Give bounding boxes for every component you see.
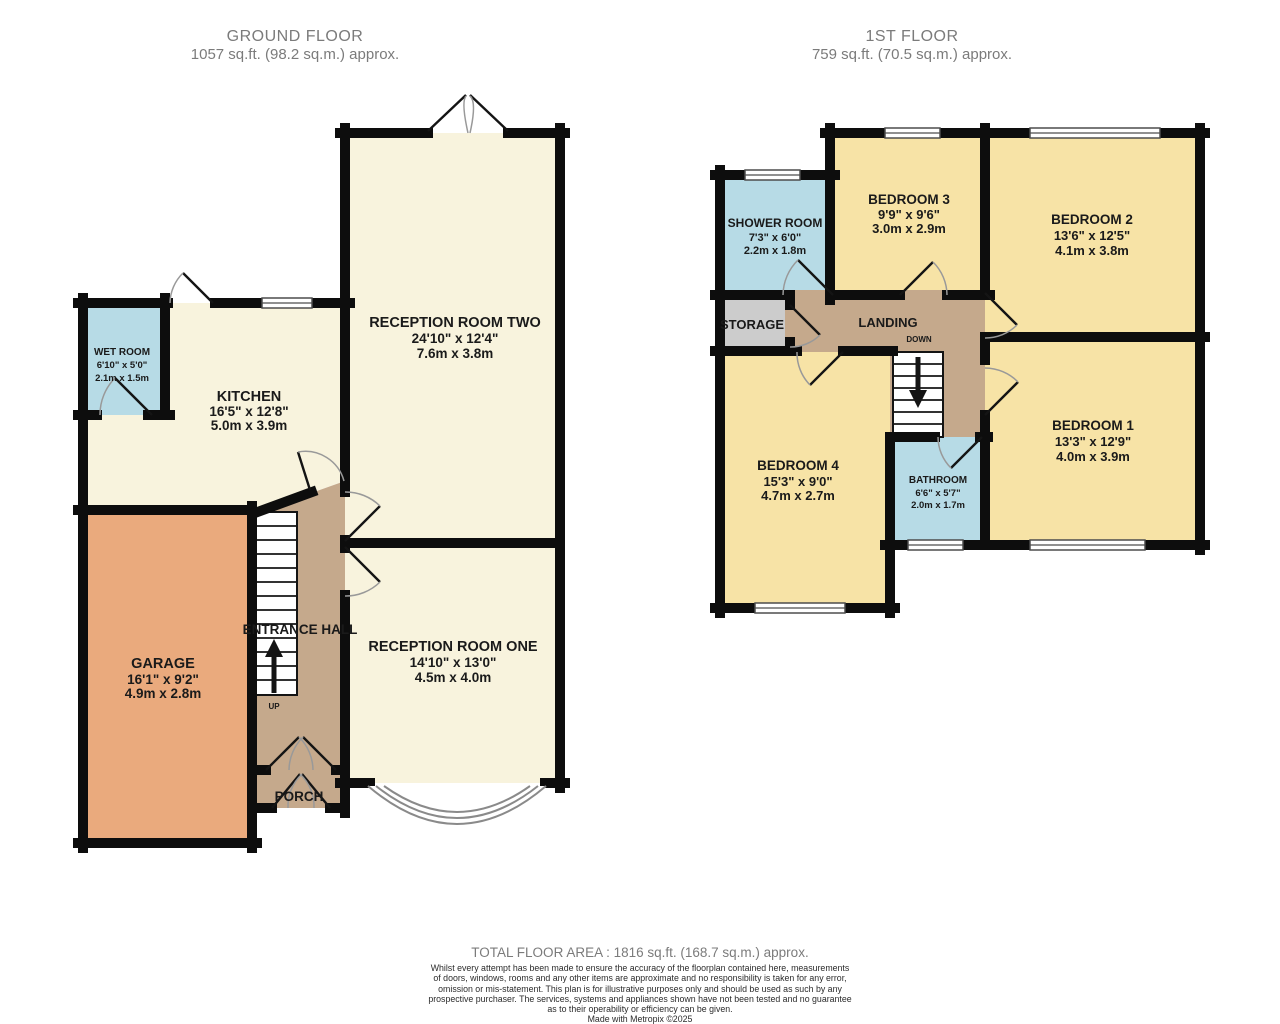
kitchen-dim-imperial: 16'5" x 12'8" (209, 404, 288, 419)
kitchen-window (262, 298, 312, 308)
stairs-up (252, 512, 297, 695)
wet-room-dim-imperial: 6'10" x 5'0" (97, 360, 148, 371)
shower-label: SHOWER ROOM (728, 216, 823, 230)
reception-one-dim-imperial: 14'10" x 13'0" (410, 655, 497, 670)
ground-floor-plan: WET ROOM 6'10" x 5'0" 2.1m x 1.5m KITCHE… (78, 95, 565, 848)
reception-two-dim-imperial: 24'10" x 12'4" (412, 331, 499, 346)
disclaimer-line: Made with Metropix ©2025 (0, 1014, 1280, 1024)
reception-two-dim-metric: 7.6m x 3.8m (417, 346, 494, 361)
reception-one-label: RECEPTION ROOM ONE (368, 639, 538, 655)
stairs-down (893, 352, 943, 437)
porch-label: PORCH (275, 789, 324, 804)
bathroom-dim-metric: 2.0m x 1.7m (911, 500, 965, 511)
disclaimer-line: of doors, windows, rooms and any other i… (0, 973, 1280, 983)
bedroom4-window (755, 603, 845, 613)
bedroom3-dim-imperial: 9'9" x 9'6" (878, 207, 940, 222)
floorplan-page: GROUND FLOOR 1057 sq.ft. (98.2 sq.m.) ap… (0, 0, 1280, 1024)
garage-label: GARAGE (131, 656, 195, 672)
storage-label: STORAGE (720, 317, 784, 332)
kitchen-exterior-door (170, 273, 213, 303)
landing-label: LANDING (858, 315, 917, 330)
bedroom3-label: BEDROOM 3 (868, 192, 950, 207)
bedroom1-label: BEDROOM 1 (1052, 418, 1134, 433)
bedroom4-dim-imperial: 15'3" x 9'0" (763, 474, 832, 489)
bathroom-window (908, 540, 963, 550)
kitchen-label: KITCHEN (217, 389, 281, 405)
bedroom2-dim-imperial: 13'6" x 12'5" (1054, 228, 1130, 243)
bay-window (368, 786, 546, 824)
bathroom-label: BATHROOM (909, 475, 967, 486)
bedroom4-label: BEDROOM 4 (757, 458, 839, 473)
garage-dim-metric: 4.9m x 2.8m (125, 686, 202, 701)
shower-dim-imperial: 7'3" x 6'0" (749, 232, 801, 244)
wet-room-dim-metric: 2.1m x 1.5m (95, 373, 149, 384)
disclaimer-line: prospective purchaser. The services, sys… (0, 994, 1280, 1004)
french-doors (428, 95, 508, 133)
bedroom2-dim-metric: 4.1m x 3.8m (1055, 243, 1129, 258)
kitchen-dim-metric: 5.0m x 3.9m (211, 418, 288, 433)
disclaimer-line: Whilst every attempt has been made to en… (0, 963, 1280, 973)
bedroom1-dim-metric: 4.0m x 3.9m (1056, 449, 1130, 464)
disclaimer: Whilst every attempt has been made to en… (0, 963, 1280, 1024)
floorplan-drawing: WET ROOM 6'10" x 5'0" 2.1m x 1.5m KITCHE… (0, 0, 1280, 1024)
bedroom2-window (1030, 128, 1160, 138)
bedroom4-dim-metric: 4.7m x 2.7m (761, 488, 835, 503)
first-floor-plan: SHOWER ROOM 7'3" x 6'0" 2.2m x 1.8m BEDR… (715, 128, 1205, 613)
shower-window (745, 170, 800, 180)
wet-room-label: WET ROOM (94, 347, 150, 358)
bathroom-dim-imperial: 6'6" x 5'7" (915, 488, 960, 499)
shower-dim-metric: 2.2m x 1.8m (744, 245, 807, 257)
stairs-down-label: DOWN (906, 335, 932, 344)
bedroom3-dim-metric: 3.0m x 2.9m (872, 221, 946, 236)
bedroom3-window (885, 128, 940, 138)
bedroom1-dim-imperial: 13'3" x 12'9" (1055, 434, 1131, 449)
disclaimer-line: omission or mis-statement. This plan is … (0, 984, 1280, 994)
reception-one-dim-metric: 4.5m x 4.0m (415, 670, 492, 685)
bedroom1-window (1030, 540, 1145, 550)
total-floor-area: TOTAL FLOOR AREA : 1816 sq.ft. (168.7 sq… (0, 945, 1280, 960)
disclaimer-line: as to their operability or efficiency ca… (0, 1004, 1280, 1014)
garage-dim-imperial: 16'1" x 9'2" (127, 672, 199, 687)
reception-two-label: RECEPTION ROOM TWO (369, 315, 541, 331)
stairs-up-label: UP (268, 702, 280, 711)
bedroom2-label: BEDROOM 2 (1051, 212, 1133, 227)
entrance-hall-label: ENTRANCE HALL (243, 622, 358, 637)
